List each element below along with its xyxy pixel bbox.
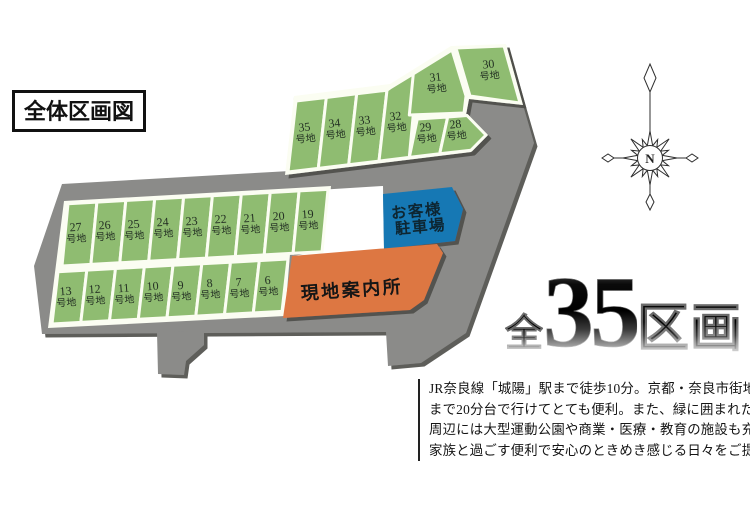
road-stub: [157, 331, 204, 375]
parking-area: お客様 駐車場: [383, 187, 463, 249]
compass-west-tip-icon: [602, 154, 614, 162]
description-line: 家族と過ごす便利で安心のときめき感じる日々をご提案。: [429, 441, 750, 462]
description-text: JR奈良線「城陽」駅まで徒歩10分。京都・奈良市街地 まで20分台で行けてとても…: [418, 379, 750, 461]
description-line: 周辺には大型運動公園や商業・医療・教育の施設も充実。: [429, 420, 750, 441]
parking-label: お客様 駐車場: [390, 199, 449, 239]
total-lots-headline: 全 35 区画: [498, 262, 750, 364]
headline-suffix: 区画: [637, 286, 743, 361]
page-title: 全体区画図: [12, 90, 146, 132]
headline-prefix: 全: [505, 302, 543, 357]
bottom-row-lots: 13号地 12号地 11号地 10号地 9号地 8号地 7号地 6号地: [52, 259, 288, 324]
compass-n-label: N: [645, 151, 655, 166]
headline-number: 35: [543, 262, 637, 364]
flyer-canvas: 27号地 26号地 25号地 24号地 23号地 22号地 21号地 20号地 …: [0, 0, 750, 505]
compass-north-tip-icon: [644, 64, 656, 92]
middle-row-lots: 27号地 26号地 25号地 24号地 23号地 22号地 21号地 20号地 …: [62, 189, 328, 266]
compass-rose: N: [598, 58, 702, 216]
compass-south-tip-icon: [646, 194, 654, 210]
compass-east-tip-icon: [686, 154, 698, 162]
description-line: まで20分台で行けてとても便利。また、緑に囲まれた: [429, 400, 750, 421]
description-line: JR奈良線「城陽」駅まで徒歩10分。京都・奈良市街地: [429, 379, 750, 400]
